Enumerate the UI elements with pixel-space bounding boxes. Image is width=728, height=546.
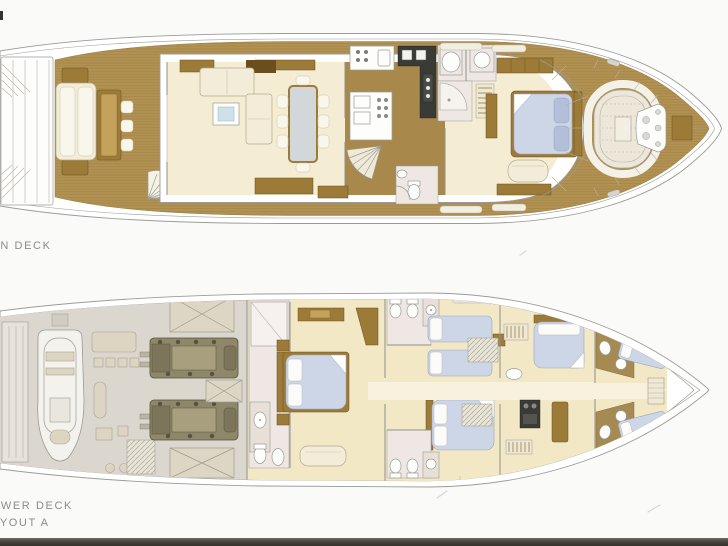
swim-platform-door	[2, 322, 28, 462]
aft-deck-seating	[56, 68, 96, 175]
vip-closet	[504, 324, 528, 340]
scanned-deck-plan-page: MAIN DECK LOWER DECK LAYOUT A	[0, 0, 728, 546]
aft-deck-chairs	[121, 101, 133, 151]
main-deck-label: MAIN DECK	[0, 241, 52, 252]
day-head	[396, 166, 438, 204]
yacht-deck-plans	[0, 0, 728, 546]
engine-starboard	[140, 400, 238, 440]
master-bed	[511, 91, 582, 157]
lower-master-bed	[277, 340, 349, 425]
guest-bathroom-bottom	[387, 430, 439, 478]
lower-deck-plan	[0, 290, 709, 490]
laundry-appliance	[520, 400, 540, 428]
engine-port	[140, 338, 238, 378]
scan-artifact-speck	[0, 11, 3, 20]
double-cabin	[426, 400, 494, 450]
transom-steps	[1, 57, 53, 205]
scan-edge-band	[0, 538, 728, 546]
main-deck-plan	[0, 34, 722, 224]
aft-deck-table	[97, 90, 121, 160]
bow-ladder	[648, 378, 664, 404]
tender-boat	[38, 314, 84, 461]
lower-deck-label: LOWER DECK	[0, 501, 73, 512]
layout-label: LAYOUT A	[0, 518, 50, 529]
coffee-table	[213, 103, 239, 125]
vip-closet-2	[506, 440, 532, 454]
corridor	[368, 382, 595, 400]
